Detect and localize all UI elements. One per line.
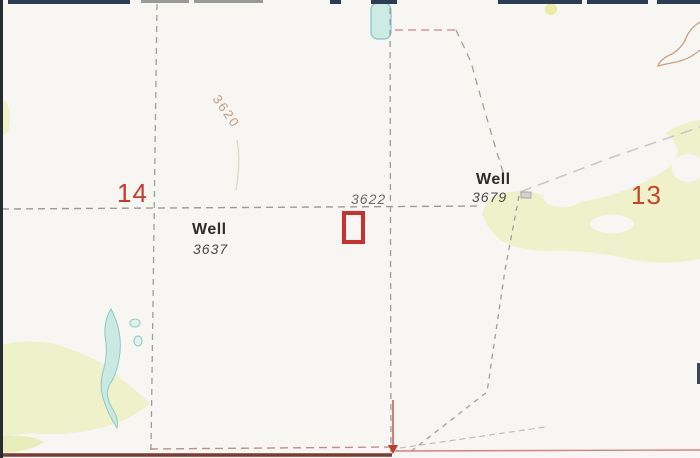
window-edge-left (0, 0, 3, 458)
top-ui-fragment-2 (141, 0, 189, 3)
trail-to-well (456, 30, 503, 172)
vegetation-gap-1 (543, 187, 583, 207)
top-ui-fragment-3 (194, 0, 263, 3)
top-ui-fragment-6 (498, 0, 582, 4)
spot-elevation-label: 3622 (351, 191, 386, 207)
top-ui-fragment-5 (371, 0, 397, 4)
vegetation-patch-right-band (482, 120, 700, 263)
section-line-central (390, 8, 391, 452)
top-ui-fragment-4 (330, 0, 341, 4)
vegetation-patch-bottom-left-corner (0, 436, 44, 453)
survey-marker-triangle (388, 445, 398, 454)
topo-map-canvas[interactable]: 14 13 Well 3637 Well 3679 3622 3620 (0, 0, 700, 458)
trail-bottom-spur (400, 427, 545, 448)
vegetation-dot-top (545, 3, 557, 15)
well-label-2: Well (476, 171, 511, 189)
pond-dot-1 (130, 319, 140, 327)
contour-line-top-right (658, 22, 700, 66)
pond-dot-2 (134, 336, 142, 346)
vegetation-patch-bottom-left (0, 341, 150, 437)
survey-line-red-horizontal (395, 450, 700, 451)
section-number-14: 14 (117, 178, 148, 209)
section-line-horizontal (2, 206, 482, 209)
contour-line-faint (236, 140, 239, 190)
well-label-1: Well (192, 221, 227, 239)
top-ui-fragment-8 (657, 0, 700, 4)
section-number-13: 13 (631, 180, 662, 211)
section-line-west (151, 4, 157, 450)
well-elevation-1: 3637 (193, 241, 228, 257)
red-selection-marker[interactable] (342, 211, 365, 244)
vegetation-gap-2 (590, 215, 634, 233)
top-ui-fragment-1 (8, 0, 130, 4)
building-symbol (521, 192, 531, 198)
boundary-dashed-bottom (150, 447, 392, 449)
top-ui-fragment-7 (587, 0, 648, 4)
well-elevation-2: 3679 (472, 189, 507, 205)
pond-water (371, 3, 391, 39)
